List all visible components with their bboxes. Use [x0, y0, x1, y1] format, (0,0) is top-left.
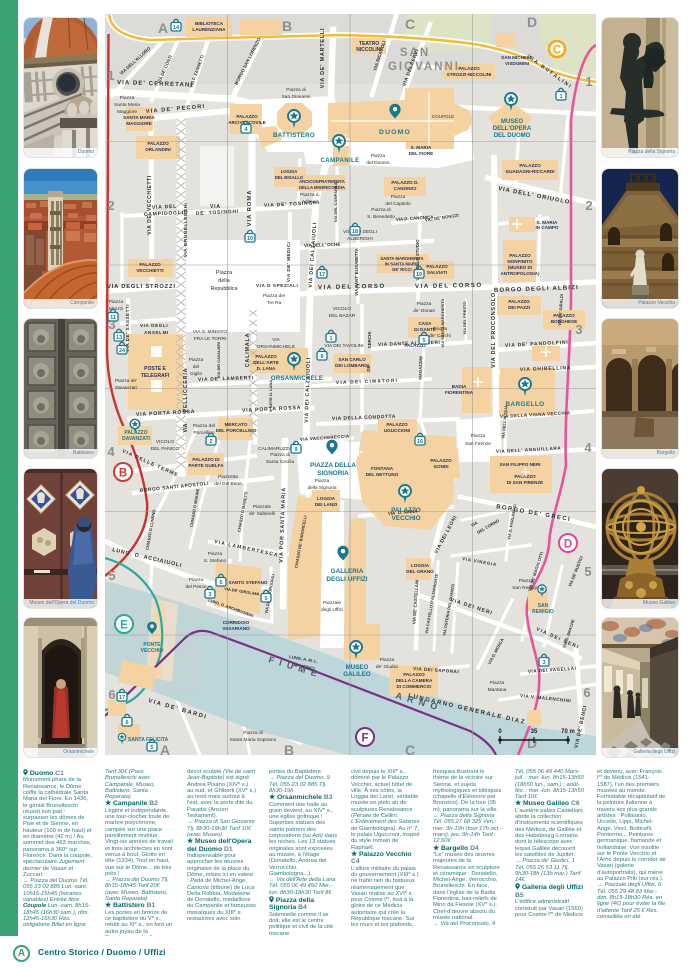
svg-text:24: 24 — [119, 348, 126, 354]
svg-text:VECCHIO: VECCHIO — [391, 515, 420, 522]
svg-text:BORGHESE: BORGHESE — [551, 319, 577, 324]
svg-text:de' Salterelli: de' Salterelli — [249, 511, 275, 517]
svg-text:NONFINITO: NONFINITO — [507, 259, 533, 264]
svg-text:SALVIATI: SALVIATI — [427, 270, 447, 275]
svg-text:PALAZZO: PALAZZO — [139, 262, 161, 267]
svg-text:2: 2 — [209, 439, 212, 445]
svg-text:DEGLI UFFIZI: DEGLI UFFIZI — [326, 576, 367, 583]
svg-text:San Firenze: San Firenze — [465, 441, 491, 447]
svg-text:9: 9 — [294, 447, 297, 453]
svg-text:BATTISTERO: BATTISTERO — [273, 132, 315, 139]
svg-text:COUPOLE: COUPOLE — [432, 114, 454, 119]
svg-text:PIAZZA DELLA: PIAZZA DELLA — [310, 462, 356, 469]
svg-text:PALAZZO: PALAZZO — [508, 299, 530, 304]
svg-text:VIA DEGLI STROZZI: VIA DEGLI STROZZI — [107, 284, 176, 290]
svg-text:VIA: VIA — [272, 337, 281, 343]
svg-text:Adimari: Adimari — [302, 199, 318, 205]
svg-text:DEL NETTUNO: DEL NETTUNO — [366, 472, 399, 477]
svg-text:DEL DUOMO: DEL DUOMO — [494, 133, 531, 139]
svg-text:FRA LE TORRI: FRA LE TORRI — [194, 336, 227, 342]
svg-text:ANSELMI: ANSELMI — [144, 330, 169, 335]
svg-text:Giglio: Giglio — [190, 371, 203, 377]
svg-text:Piazza dei: Piazza dei — [263, 293, 285, 299]
svg-text:C: C — [553, 45, 561, 57]
svg-text:1: 1 — [559, 94, 562, 100]
svg-text:GALLERIA: GALLERIA — [331, 568, 364, 575]
svg-text:IN CAMPO: IN CAMPO — [536, 225, 559, 230]
svg-text:Piazza di: Piazza di — [270, 452, 289, 458]
svg-text:4: 4 — [584, 440, 592, 455]
svg-text:PALAZZO: PALAZZO — [386, 422, 408, 427]
svg-text:1: 1 — [107, 68, 114, 83]
svg-text:B: B — [282, 18, 292, 34]
svg-text:VIA DE' MEDICI: VIA DE' MEDICI — [286, 242, 291, 283]
svg-text:VIA DEL CORSO: VIA DEL CORSO — [318, 284, 386, 291]
svg-text:D. LANA: D. LANA — [257, 366, 276, 371]
svg-text:FIORENTINA: FIORENTINA — [445, 390, 474, 395]
svg-text:de' Giudici: de' Giudici — [376, 664, 398, 670]
svg-text:Santa Cecilia: Santa Cecilia — [266, 459, 295, 465]
svg-text:CERCHI: CERCHI — [367, 332, 372, 349]
svg-text:VECCHIETTI: VECCHIETTI — [136, 268, 163, 273]
svg-text:Piazza di: Piazza di — [371, 207, 390, 213]
svg-text:Piazza: Piazza — [471, 433, 486, 439]
svg-text:D: D — [564, 539, 572, 551]
svg-text:TELEGRAFI: TELEGRAFI — [141, 373, 170, 379]
svg-text:MUSEO: MUSEO — [346, 664, 369, 671]
svg-text:ORLANDINI: ORLANDINI — [145, 147, 171, 152]
svg-text:PARTE GUELFA: PARTE GUELFA — [188, 463, 224, 468]
svg-text:Piazza de': Piazza de' — [115, 378, 137, 384]
svg-text:PALAZZO: PALAZZO — [509, 253, 531, 258]
svg-text:DI DANTE: DI DANTE — [414, 327, 436, 332]
svg-text:DEL FIORE: DEL FIORE — [409, 151, 433, 156]
svg-text:DI COMMERCIO: DI COMMERCIO — [397, 684, 432, 689]
svg-text:4: 4 — [107, 444, 115, 459]
svg-text:S. Stefano: S. Stefano — [204, 558, 227, 564]
svg-text:POSTE E: POSTE E — [144, 366, 166, 372]
svg-text:6: 6 — [108, 687, 115, 702]
svg-text:B: B — [284, 742, 294, 755]
svg-text:6: 6 — [125, 720, 128, 726]
svg-text:della Signoria: della Signoria — [307, 485, 336, 491]
svg-text:VIA: VIA — [183, 423, 189, 432]
svg-text:degli Uffizi: degli Uffizi — [321, 607, 343, 613]
svg-text:Piazza: Piazza — [391, 194, 406, 200]
svg-text:Piazza: Piazza — [519, 578, 534, 584]
svg-text:3: 3 — [208, 592, 211, 598]
svg-text:SANTA MARGHERITA: SANTA MARGHERITA — [380, 256, 423, 261]
svg-text:SIGNORIA: SIGNORIA — [317, 470, 349, 477]
svg-text:DEI PAZZI: DEI PAZZI — [508, 305, 530, 310]
svg-text:3: 3 — [575, 322, 582, 337]
svg-text:PALAZZO: PALAZZO — [147, 141, 169, 146]
svg-text:REMIGIO: REMIGIO — [532, 609, 554, 615]
svg-text:16: 16 — [417, 439, 423, 445]
svg-text:PELLICCERIA: PELLICCERIA — [183, 368, 189, 413]
svg-text:PALAZZO DI: PALAZZO DI — [192, 457, 219, 462]
svg-text:CANONICI: CANONICI — [394, 186, 417, 191]
svg-text:VIA DE' VECCHIETTI: VIA DE' VECCHIETTI — [147, 175, 153, 235]
svg-text:5: 5 — [264, 596, 267, 602]
svg-text:Piazza: Piazza — [120, 95, 135, 101]
svg-text:VIA BRUNELLESCHI: VIA BRUNELLESCHI — [183, 202, 189, 257]
svg-text:VIA: VIA — [210, 204, 221, 210]
svg-text:CALIMARUZZA: CALIMARUZZA — [258, 446, 293, 452]
svg-text:Piazzale: Piazzale — [323, 600, 341, 606]
svg-text:SAN CARLO: SAN CARLO — [338, 357, 366, 362]
svg-text:B: B — [119, 468, 127, 480]
svg-text:STROZZI-NICCOLINI: STROZZI-NICCOLINI — [447, 72, 492, 77]
svg-text:Santa Maria: Santa Maria — [114, 102, 140, 108]
svg-text:ALBERIGHI: ALBERIGHI — [347, 236, 373, 242]
svg-text:VIA DEI TAVOLINI: VIA DEI TAVOLINI — [324, 343, 363, 349]
svg-text:Piazza: Piazza — [380, 657, 395, 663]
svg-text:FONTANA: FONTANA — [371, 466, 394, 471]
svg-text:5: 5 — [584, 564, 591, 579]
svg-text:PALAZZO: PALAZZO — [403, 672, 425, 677]
svg-text:ORSANMICHELE: ORSANMICHELE — [271, 376, 323, 382]
svg-text:VIA D SPEZIALI: VIA D SPEZIALI — [256, 283, 298, 288]
svg-text:VIA DEI CAVALIERI: VIA DEI CAVALIERI — [216, 342, 221, 378]
svg-text:MUSEO: MUSEO — [501, 119, 523, 125]
svg-text:11: 11 — [110, 315, 116, 321]
svg-text:PALAZZO: PALAZZO — [236, 114, 258, 119]
svg-text:PALAZZO: PALAZZO — [255, 354, 277, 359]
svg-text:Piazza: Piazza — [371, 153, 386, 159]
svg-text:SANTA MARIA: SANTA MARIA — [123, 115, 155, 120]
svg-text:della: della — [218, 278, 229, 284]
svg-text:LOGGIA: LOGGIA — [317, 496, 336, 501]
svg-text:LAURENZIANA: LAURENZIANA — [192, 27, 226, 32]
svg-text:Piazza: Piazza — [208, 551, 223, 557]
svg-text:DEL BAZAR: DEL BAZAR — [329, 313, 356, 319]
svg-text:V. ARTE D. LANA: V. ARTE D. LANA — [268, 380, 273, 413]
svg-text:DELLA CAMERA: DELLA CAMERA — [396, 678, 433, 683]
svg-text:del Capitolo: del Capitolo — [385, 201, 411, 207]
svg-text:del Pesce: del Pesce — [185, 584, 206, 590]
svg-text:Piazza d.: Piazza d. — [300, 192, 320, 198]
svg-text:14: 14 — [173, 25, 180, 31]
svg-text:GONDI: GONDI — [433, 464, 448, 469]
svg-text:Piazza di: Piazza di — [286, 87, 305, 93]
svg-text:MERCATO: MERCATO — [225, 422, 248, 427]
svg-text:de' Carchi: de' Carchi — [429, 333, 450, 339]
svg-text:CALIMALA: CALIMALA — [245, 333, 251, 368]
svg-text:CASA: CASA — [418, 321, 432, 326]
svg-text:DELLA MISERICORDIA: DELLA MISERICORDIA — [299, 185, 345, 190]
svg-text:17: 17 — [319, 272, 325, 278]
svg-text:17: 17 — [119, 695, 125, 701]
svg-text:3: 3 — [542, 660, 545, 666]
svg-text:Piazza del: Piazza del — [193, 423, 215, 429]
svg-text:D: D — [527, 14, 537, 30]
svg-text:VICOLO: VICOLO — [156, 439, 174, 445]
svg-text:VIA DE' SASSETTI: VIA DE' SASSETTI — [125, 304, 130, 352]
svg-text:del: del — [193, 364, 199, 370]
svg-text:VIA ROMA: VIA ROMA — [247, 190, 253, 227]
svg-text:PALAZZO D.: PALAZZO D. — [391, 180, 418, 185]
svg-text:DEL PORCELLINO: DEL PORCELLINO — [216, 428, 257, 433]
svg-text:NICCOLINI: NICCOLINI — [356, 47, 382, 53]
svg-text:LOGGIA: LOGGIA — [281, 169, 298, 174]
svg-text:PALAZZO: PALAZZO — [391, 507, 421, 514]
svg-text:DEI LOMBARDI: DEI LOMBARDI — [335, 363, 369, 368]
svg-text:PALAZZO: PALAZZO — [426, 264, 448, 269]
svg-text:PALAZZO: PALAZZO — [553, 313, 575, 318]
svg-text:C: C — [405, 742, 415, 755]
svg-text:VIA S. MINIATO: VIA S. MINIATO — [193, 329, 227, 335]
svg-text:2: 2 — [585, 198, 592, 213]
svg-text:(MUSEO DI: (MUSEO DI — [508, 265, 532, 270]
svg-text:1: 1 — [329, 336, 332, 342]
svg-text:VIA DEGLI: VIA DEGLI — [140, 323, 168, 328]
svg-text:VIA SANTA MARGHERITA: VIA SANTA MARGHERITA — [440, 298, 445, 347]
svg-text:SANTO STEFANO: SANTO STEFANO — [229, 580, 268, 585]
svg-text:18: 18 — [352, 229, 358, 235]
svg-text:DUOMO: DUOMO — [379, 129, 411, 136]
svg-text:PALAZZO: PALAZZO — [458, 66, 480, 71]
svg-text:6: 6 — [583, 685, 590, 700]
svg-text:DEI LANZI: DEI LANZI — [315, 502, 337, 507]
svg-text:DE' RICCI: DE' RICCI — [392, 267, 411, 272]
svg-text:DELL'ARTE: DELL'ARTE — [253, 360, 279, 365]
svg-text:ARCICONFRATERNITA: ARCICONFRATERNITA — [299, 179, 345, 184]
svg-text:5: 5 — [150, 745, 153, 751]
svg-text:PALAZZO: PALAZZO — [430, 458, 452, 463]
svg-text:MAGAZZINI: MAGAZZINI — [418, 356, 424, 379]
svg-text:C: C — [405, 16, 415, 32]
svg-text:13: 13 — [116, 335, 122, 341]
svg-text:ORSANMICHELE: ORSANMICHELE — [257, 344, 295, 350]
svg-text:MAGGIORE: MAGGIORE — [126, 121, 152, 126]
svg-text:SAN FILIPPO NERI: SAN FILIPPO NERI — [499, 462, 540, 467]
svg-text:A: A — [158, 20, 168, 36]
svg-text:A: A — [160, 742, 170, 755]
svg-text:Mantana: Mantana — [488, 687, 507, 693]
svg-text:del Del Bene: del Del Bene — [214, 481, 242, 487]
svg-text:E: E — [120, 620, 128, 632]
svg-text:VASARIANO: VASARIANO — [222, 626, 250, 631]
svg-text:Piazza: Piazza — [315, 478, 330, 484]
svg-text:Tre Ra: Tre Ra — [267, 300, 282, 306]
svg-text:LOGGIA: LOGGIA — [411, 563, 430, 568]
svg-text:DEL PANICO: DEL PANICO — [151, 446, 180, 452]
svg-text:6: 6 — [219, 580, 222, 586]
svg-text:ANTROPOLOGIA): ANTROPOLOGIA) — [500, 271, 540, 276]
svg-text:8: 8 — [320, 354, 323, 360]
svg-text:SAN MICHELE: SAN MICHELE — [501, 55, 533, 60]
svg-text:del Duomo: del Duomo — [366, 160, 390, 166]
svg-text:D: D — [527, 735, 537, 751]
svg-text:VIA SANT' ELISABETTA: VIA SANT' ELISABETTA — [354, 248, 359, 296]
svg-text:Piazzale: Piazzale — [253, 504, 271, 510]
svg-text:Piazza: Piazza — [189, 577, 204, 583]
svg-text:IN SANTA MARIA: IN SANTA MARIA — [385, 262, 419, 267]
svg-text:GUADAGNI-RICCARDI: GUADAGNI-RICCARDI — [506, 169, 555, 174]
svg-text:35: 35 — [531, 729, 538, 735]
svg-text:VISDOMINI: VISDOMINI — [505, 61, 529, 66]
svg-text:BADIA: BADIA — [452, 384, 467, 389]
svg-text:Santa Maria Sopramo: Santa Maria Sopramo — [230, 737, 277, 743]
svg-text:2: 2 — [107, 198, 114, 213]
svg-text:5: 5 — [108, 568, 115, 583]
svg-text:DI SAN FIRENZE: DI SAN FIRENZE — [507, 480, 544, 485]
svg-text:San Remigio: San Remigio — [512, 585, 540, 591]
svg-text:VIA DEL CORSO: VIA DEL CORSO — [415, 283, 483, 290]
svg-text:DELL'OPERA: DELL'OPERA — [493, 126, 532, 132]
svg-text:Piazza: Piazza — [417, 301, 432, 307]
svg-text:10: 10 — [247, 236, 253, 242]
svg-text:DEL GRANO: DEL GRANO — [406, 569, 434, 574]
svg-text:PALAZZO: PALAZZO — [519, 163, 541, 168]
svg-text:F: F — [361, 733, 368, 745]
svg-text:VIA DE' MARTELLI: VIA DE' MARTELLI — [320, 28, 326, 89]
svg-text:DAVANZATI: DAVANZATI — [122, 436, 150, 442]
svg-text:VICOLO: VICOLO — [333, 306, 351, 312]
svg-text:CAMPANILE: CAMPANILE — [320, 157, 359, 164]
svg-text:GALILEO: GALILEO — [343, 671, 371, 678]
svg-text:de' Donati: de' Donati — [413, 308, 434, 314]
svg-text:70 m: 70 m — [561, 729, 575, 735]
svg-text:Repubblica: Repubblica — [211, 286, 238, 292]
svg-text:San Giovanni: San Giovanni — [282, 94, 311, 100]
svg-text:5: 5 — [422, 338, 425, 344]
svg-text:VIA DEL PRESTO: VIA DEL PRESTO — [462, 301, 467, 334]
svg-text:1: 1 — [585, 74, 592, 89]
svg-text:VIA DEL PROCONSOLO: VIA DEL PROCONSOLO — [491, 292, 497, 368]
svg-text:S. Benedetto: S. Benedetto — [367, 214, 395, 220]
svg-text:Piazza: Piazza — [189, 357, 204, 363]
svg-text:CORRIDOIO: CORRIDOIO — [223, 620, 250, 625]
svg-text:Piazza: Piazza — [216, 270, 232, 276]
svg-text:Davanzati: Davanzati — [115, 385, 136, 391]
svg-text:Piazza di: Piazza di — [243, 730, 262, 736]
svg-text:Piazza: Piazza — [490, 680, 505, 686]
svg-text:VECCHIO: VECCHIO — [141, 648, 164, 654]
svg-text:BIBLIOTECA: BIBLIOTECA — [195, 21, 224, 26]
svg-text:Piazza: Piazza — [109, 299, 124, 305]
svg-text:19: 19 — [416, 272, 422, 278]
svg-text:UGUCCIONI: UGUCCIONI — [384, 428, 410, 433]
svg-text:BARGELLO: BARGELLO — [505, 401, 544, 408]
svg-text:Piazzetta: Piazzetta — [218, 474, 238, 480]
